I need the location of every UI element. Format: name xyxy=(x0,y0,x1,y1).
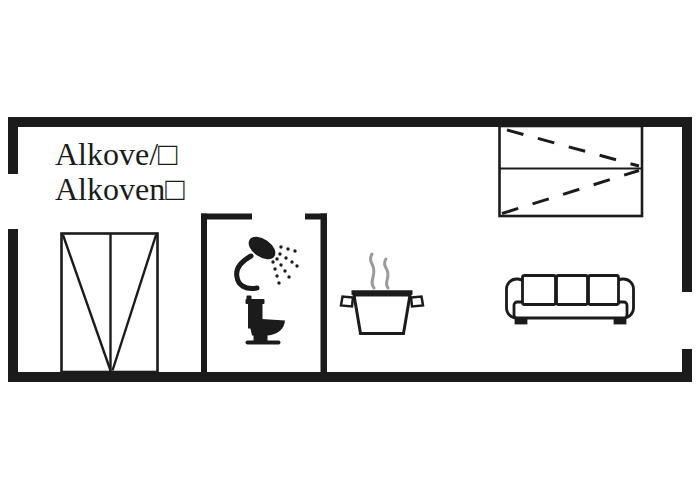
toilet-icon xyxy=(246,296,286,345)
right-wall-upper xyxy=(682,117,692,292)
bed-dashed-diagonal-top xyxy=(507,130,639,166)
alcove-label-line1: Alkove/□ xyxy=(55,136,178,172)
left-wall-lower xyxy=(8,229,18,382)
cooking-pot-icon xyxy=(341,293,423,334)
bathroom-left-wall xyxy=(201,214,207,373)
toilet-pedestal xyxy=(254,334,268,341)
sofa-icon xyxy=(507,276,634,324)
wardrobe-door-diagonal-left xyxy=(63,235,111,371)
toilet-bowl xyxy=(248,318,285,336)
bathroom-right-wall xyxy=(321,214,328,373)
wardrobe-door-diagonal-right xyxy=(113,235,157,371)
floor-plan: Alkove/□ Alkoven□ xyxy=(0,0,700,500)
shower-icon xyxy=(237,232,299,288)
sofa-cushion-3 xyxy=(589,276,619,305)
bed-dashed-diagonal-bottom xyxy=(502,171,639,214)
steam-wisp-left xyxy=(370,254,374,288)
sofa-cushion-2 xyxy=(557,276,588,305)
bathroom-top-wall-left xyxy=(201,214,252,220)
toilet-lid xyxy=(246,299,265,304)
toilet-base xyxy=(246,341,281,345)
pot-handle-right xyxy=(411,297,423,307)
left-wall-upper xyxy=(8,117,18,174)
bed-outline xyxy=(500,126,643,216)
pot-handle-left xyxy=(341,297,353,307)
shower-hose xyxy=(237,256,257,288)
alcove-label-line2: Alkoven□ xyxy=(55,171,185,207)
right-wall-lower xyxy=(682,349,692,382)
pot-body xyxy=(354,295,410,334)
alcove-bed-icon xyxy=(500,126,643,216)
bathroom-top-wall-right xyxy=(305,214,327,220)
shower-spray-dots xyxy=(271,245,298,284)
bathroom-walls xyxy=(201,214,327,373)
sofa-cushion-1 xyxy=(523,276,556,305)
steam-icon xyxy=(370,254,388,288)
bottom-wall xyxy=(8,372,692,382)
wardrobe-icon xyxy=(62,234,158,373)
alcove-label: Alkove/□ Alkoven□ xyxy=(55,136,185,207)
steam-wisp-right xyxy=(384,259,388,288)
